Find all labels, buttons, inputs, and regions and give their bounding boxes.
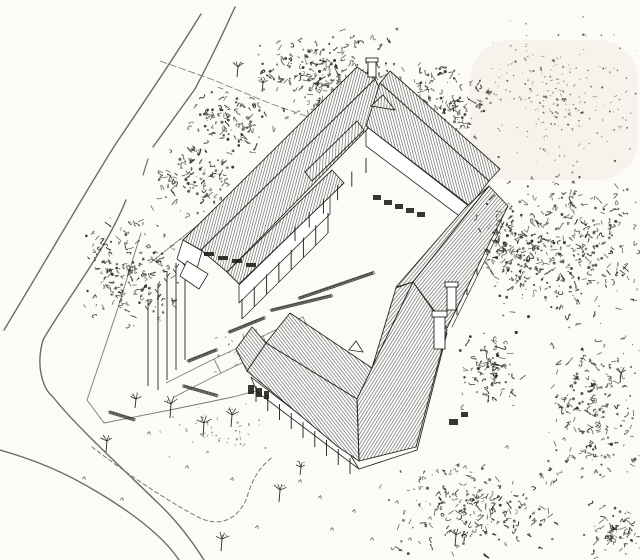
- architectural-perspective-figure: [0, 0, 640, 560]
- chimney-southeast: [432, 311, 447, 349]
- chimney-east: [445, 282, 458, 310]
- drawing-svg: [0, 0, 640, 560]
- drawing-canvas: [0, 0, 640, 560]
- chimney-north-apex: [366, 58, 378, 77]
